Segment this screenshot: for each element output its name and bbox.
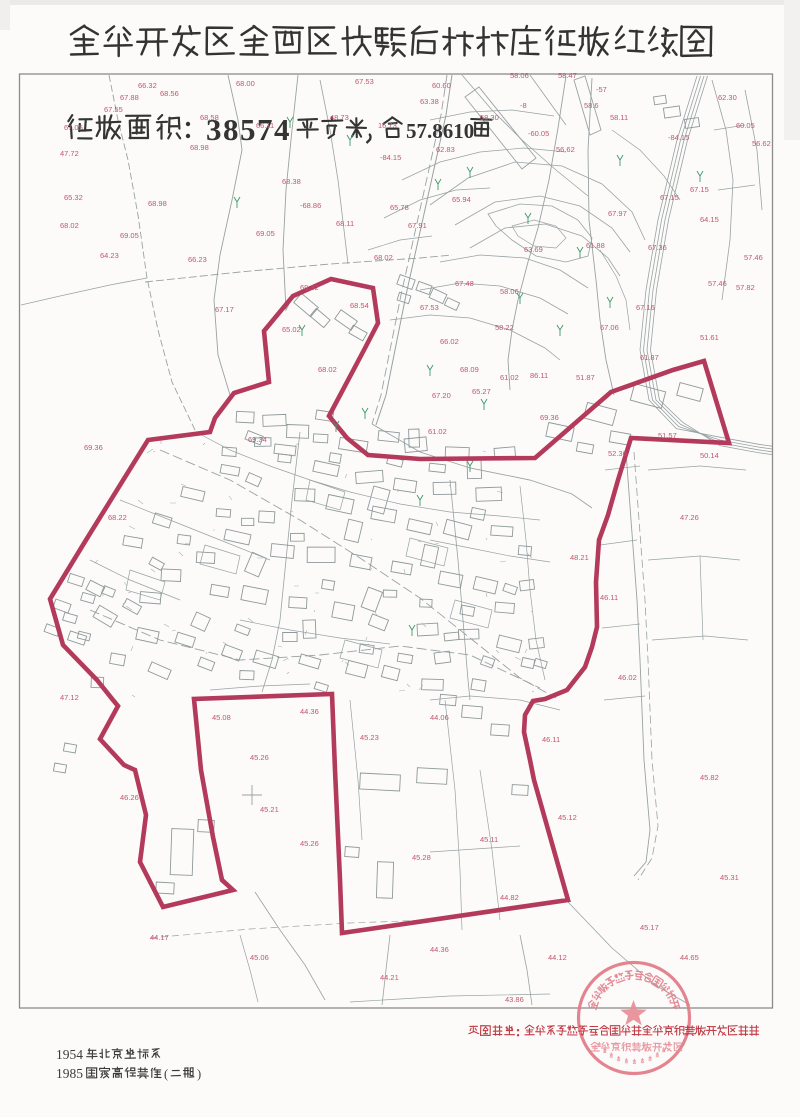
svg-text:67.53: 67.53 [355, 77, 374, 86]
svg-text:65.27: 65.27 [472, 387, 491, 396]
svg-text:68.38: 68.38 [282, 177, 301, 186]
svg-text:67.48: 67.48 [455, 279, 474, 288]
svg-text:66.23: 66.23 [188, 255, 207, 264]
svg-text:68.98: 68.98 [148, 199, 167, 208]
svg-text:69.34: 69.34 [248, 435, 267, 444]
svg-text:67.06: 67.06 [600, 323, 619, 332]
svg-text:46.11: 46.11 [600, 593, 618, 602]
svg-text:44.36: 44.36 [300, 707, 319, 716]
svg-text:56.62: 56.62 [556, 145, 575, 154]
svg-text:56.62: 56.62 [752, 139, 771, 148]
svg-text:44.21: 44.21 [380, 973, 399, 982]
svg-text:68.09: 68.09 [460, 365, 479, 374]
svg-text:67.15: 67.15 [690, 185, 709, 194]
svg-text:44.12: 44.12 [548, 953, 567, 962]
svg-text:46.26: 46.26 [120, 793, 139, 802]
svg-text:44.82: 44.82 [500, 893, 519, 902]
svg-text:69.32: 69.32 [300, 283, 319, 292]
svg-text:63.38: 63.38 [420, 97, 439, 106]
svg-text:67.20: 67.20 [432, 391, 451, 400]
svg-text:61.87: 61.87 [640, 353, 659, 362]
svg-text:67.91: 67.91 [408, 221, 427, 230]
svg-text:44.65: 44.65 [680, 953, 699, 962]
svg-text:45.31: 45.31 [720, 873, 739, 882]
svg-text:16.73: 16.73 [378, 121, 397, 130]
svg-text:67.05: 67.05 [64, 123, 83, 132]
svg-text:48.21: 48.21 [570, 553, 589, 562]
svg-text:58.22: 58.22 [495, 323, 514, 332]
svg-text:51.87: 51.87 [576, 373, 595, 382]
svg-text:65.78: 65.78 [390, 203, 409, 212]
svg-text:61.02: 61.02 [500, 373, 519, 382]
svg-text:67.97: 67.97 [608, 209, 627, 218]
svg-text:1985: 1985 [56, 1066, 83, 1081]
svg-text:68.22: 68.22 [108, 513, 127, 522]
svg-text:1954: 1954 [56, 1047, 83, 1062]
svg-text:69.36: 69.36 [540, 413, 559, 422]
svg-text:61.02: 61.02 [428, 427, 447, 436]
svg-text:66.02: 66.02 [440, 337, 459, 346]
svg-text:69.05: 69.05 [120, 231, 139, 240]
svg-text:-68.86: -68.86 [300, 201, 321, 210]
svg-text:58.06: 58.06 [510, 71, 529, 80]
svg-text:62.30: 62.30 [718, 93, 737, 102]
svg-text:47.72: 47.72 [60, 149, 79, 158]
svg-text:44.06: 44.06 [430, 713, 449, 722]
svg-text:50.14: 50.14 [700, 451, 719, 460]
svg-text:46.02: 46.02 [618, 673, 637, 682]
svg-text:57.46: 57.46 [708, 279, 727, 288]
svg-text:68.98: 68.98 [190, 143, 209, 152]
svg-text:45.82: 45.82 [700, 773, 719, 782]
svg-text:67.88: 67.88 [120, 93, 139, 102]
svg-text:67.16: 67.16 [636, 303, 655, 312]
svg-text:52.36: 52.36 [608, 449, 627, 458]
svg-text:(: ( [164, 1067, 168, 1081]
svg-text:68.02: 68.02 [374, 253, 393, 262]
svg-text:45.26: 45.26 [250, 753, 269, 762]
svg-text:45.23: 45.23 [360, 733, 379, 742]
svg-text:67.55: 67.55 [104, 105, 123, 114]
svg-text:58.6: 58.6 [584, 101, 599, 110]
svg-text:68.56: 68.56 [160, 89, 179, 98]
svg-text:66.11: 66.11 [256, 121, 274, 130]
svg-text:-57: -57 [596, 85, 607, 94]
svg-text:51.57: 51.57 [658, 431, 677, 440]
svg-text:58.30: 58.30 [480, 113, 499, 122]
svg-text:45.12: 45.12 [558, 813, 577, 822]
svg-text:44.17: 44.17 [150, 933, 169, 942]
svg-text:67.36: 67.36 [648, 243, 667, 252]
svg-text:45.28: 45.28 [412, 853, 431, 862]
svg-text:86.11: 86.11 [530, 371, 548, 380]
svg-text:69.36: 69.36 [84, 443, 103, 452]
svg-text:65.02: 65.02 [282, 325, 301, 334]
svg-text:57.82: 57.82 [736, 283, 755, 292]
svg-text:): ) [197, 1067, 201, 1081]
svg-text:-8: -8 [520, 101, 527, 110]
svg-text:43.86: 43.86 [505, 995, 524, 1004]
svg-text:67.15: 67.15 [660, 193, 679, 202]
svg-text:65.32: 65.32 [64, 193, 83, 202]
svg-text:45.26: 45.26 [300, 839, 319, 848]
svg-text:45.08: 45.08 [212, 713, 231, 722]
svg-text:68.11: 68.11 [336, 219, 354, 228]
svg-text:68.02: 68.02 [60, 221, 79, 230]
svg-text:67.53: 67.53 [420, 303, 439, 312]
svg-text:68.00: 68.00 [236, 79, 255, 88]
svg-text:60.05: 60.05 [736, 121, 755, 130]
svg-text:47.26: 47.26 [680, 513, 699, 522]
svg-text:47.12: 47.12 [60, 693, 79, 702]
svg-text:65.94: 65.94 [452, 195, 471, 204]
svg-text:-84.15: -84.15 [380, 153, 401, 162]
svg-text:45.11: 45.11 [480, 835, 498, 844]
svg-text:45.21: 45.21 [260, 805, 279, 814]
svg-text:48.73: 48.73 [330, 113, 349, 122]
svg-text:61.88: 61.88 [586, 241, 605, 250]
svg-text:69.05: 69.05 [256, 229, 275, 238]
svg-text:44.36: 44.36 [430, 945, 449, 954]
svg-text:67.17: 67.17 [215, 305, 234, 314]
svg-text:64.23: 64.23 [100, 251, 119, 260]
svg-text:45.06: 45.06 [250, 953, 269, 962]
svg-text:68.02: 68.02 [318, 365, 337, 374]
svg-text:45.17: 45.17 [640, 923, 659, 932]
svg-text:-60.05: -60.05 [528, 129, 549, 138]
svg-text:58.06: 58.06 [500, 287, 519, 296]
svg-text:66.32: 66.32 [138, 81, 157, 90]
svg-text:58.47: 58.47 [558, 71, 577, 80]
svg-text:57.8610: 57.8610 [406, 119, 474, 143]
svg-text:63.69: 63.69 [524, 245, 543, 254]
svg-text:57.46: 57.46 [744, 253, 763, 262]
svg-text:-84.15: -84.15 [668, 133, 689, 142]
svg-text:60.60: 60.60 [432, 81, 451, 90]
svg-text:64.15: 64.15 [700, 215, 719, 224]
svg-text:58.11: 58.11 [610, 113, 628, 122]
svg-text:68.54: 68.54 [350, 301, 369, 310]
svg-text:68.58: 68.58 [200, 113, 219, 122]
svg-text:46.11: 46.11 [542, 735, 560, 744]
svg-text:62.83: 62.83 [436, 145, 455, 154]
svg-text:51.61: 51.61 [700, 333, 719, 342]
